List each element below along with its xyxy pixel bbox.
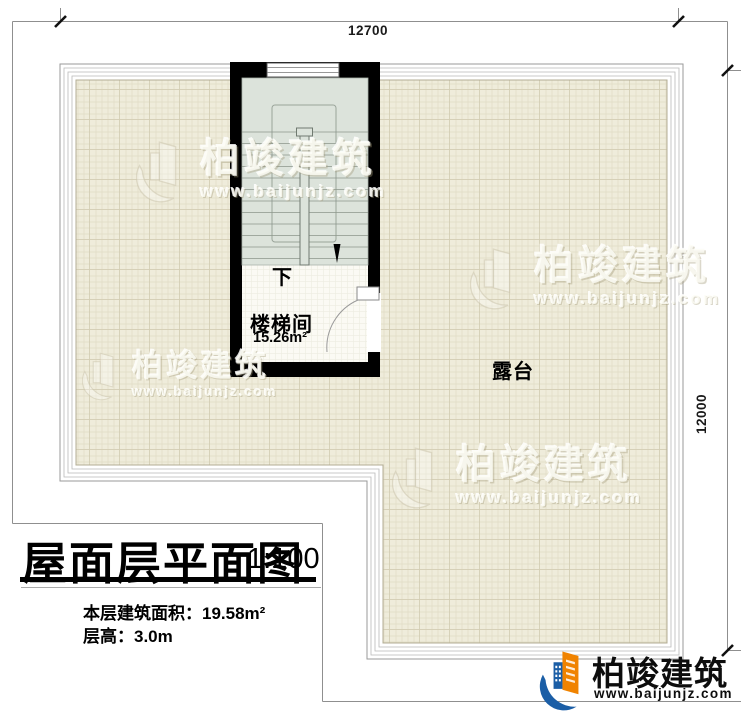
stair-handrail <box>300 134 309 265</box>
company-logo-icon <box>538 648 594 712</box>
floor-height-text: 层高：3.0m <box>83 622 173 647</box>
stairwell-window <box>267 63 339 77</box>
dimension-top: 12700 <box>330 23 406 38</box>
door-leaf <box>357 287 379 300</box>
stairwell-area-label: 15.26m² <box>253 330 307 346</box>
terrace-label: 露台 <box>492 355 534 384</box>
title-underline-thin <box>21 587 321 588</box>
title-underline-thick <box>20 577 316 582</box>
drawing-scale: 1:100 <box>247 543 320 576</box>
company-logo-url: www.baijunjz.com <box>594 686 733 701</box>
floorplan-page: 柏竣建筑 www.baijunjz.com 柏竣建筑 www.baijunjz.… <box>0 0 750 720</box>
stair-direction-label: 下 <box>272 261 292 290</box>
dimension-right: 12000 <box>694 384 710 444</box>
floor-area-text: 本层建筑面积：19.58m² <box>83 599 265 624</box>
stair-handrail-cap <box>297 128 313 136</box>
